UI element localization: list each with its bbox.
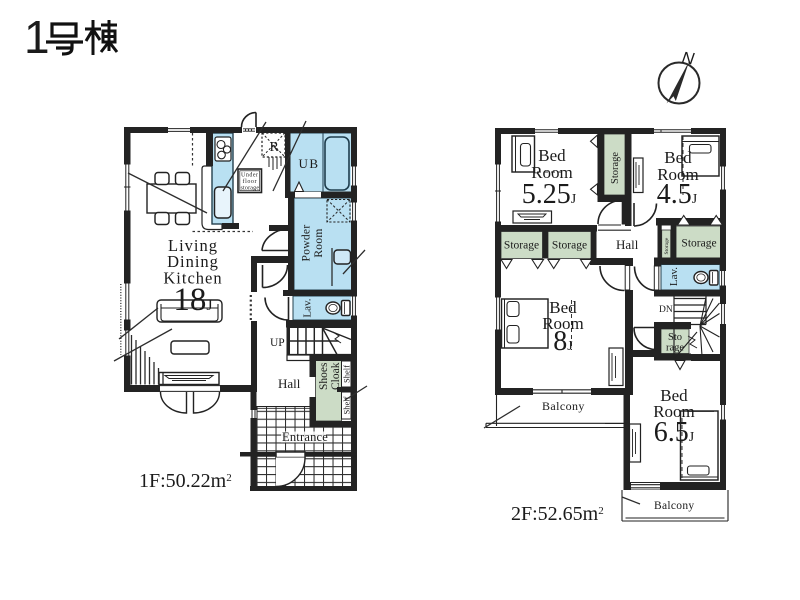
svg-text:Powder: Powder	[301, 225, 313, 262]
svg-text:Balcony: Balcony	[542, 399, 585, 413]
svg-text:4.5J: 4.5J	[657, 179, 698, 210]
svg-text:Shelf: Shelf	[341, 365, 351, 383]
svg-text:6.5J: 6.5J	[654, 417, 695, 448]
svg-text:2F:52.65m2: 2F:52.65m2	[511, 503, 604, 525]
svg-text:Sto: Sto	[668, 332, 682, 343]
svg-text:Cloak: Cloak	[330, 362, 342, 390]
svg-text:UP: UP	[270, 337, 285, 349]
svg-text:R: R	[270, 140, 280, 155]
svg-text:Storage: Storage	[610, 152, 621, 184]
svg-text:Lav.: Lav.	[668, 267, 680, 286]
svg-text:UB: UB	[299, 156, 320, 171]
svg-text:Lav.: Lav.	[302, 298, 314, 317]
svg-text:Storage: Storage	[504, 240, 539, 252]
svg-text:Under: Under	[241, 173, 258, 179]
svg-text:Room: Room	[313, 228, 325, 257]
svg-text:1: 1	[24, 11, 50, 63]
svg-text:Balcony: Balcony	[654, 500, 694, 512]
svg-text:1F:50.22m2: 1F:50.22m2	[139, 470, 232, 492]
svg-text:Hall: Hall	[616, 237, 639, 252]
svg-text:Hall: Hall	[278, 376, 301, 391]
svg-text:DN: DN	[659, 305, 673, 315]
svg-text:Storage: Storage	[664, 237, 670, 254]
svg-text:Storage: Storage	[681, 238, 716, 250]
svg-text:storage: storage	[241, 186, 260, 192]
svg-text:Storage: Storage	[552, 240, 587, 252]
svg-text:rage: rage	[666, 343, 684, 354]
svg-text:5.25J: 5.25J	[522, 179, 577, 210]
svg-text:Shoes: Shoes	[318, 362, 330, 390]
svg-text:Entrance: Entrance	[282, 430, 328, 444]
svg-text:floor: floor	[243, 178, 257, 185]
